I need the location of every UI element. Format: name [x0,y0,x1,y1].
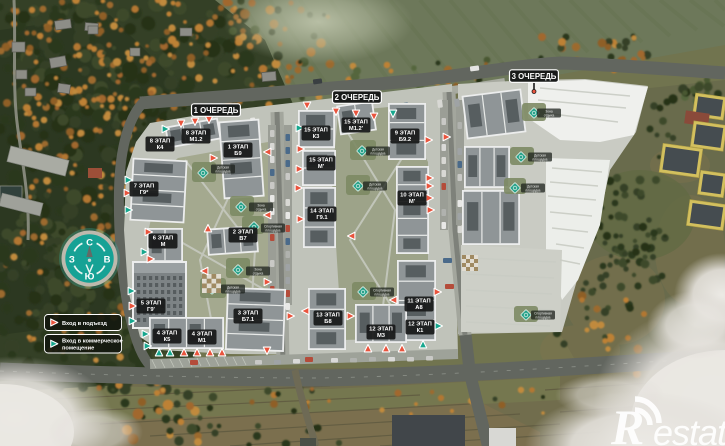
svg-text:К3: К3 [313,134,321,140]
svg-text:М: М [161,242,166,248]
svg-text:площадка: площадка [375,293,390,297]
svg-text:8 ЭТАП: 8 ЭТАП [150,139,170,145]
svg-text:М': М' [409,199,416,205]
svg-text:площадка: площадка [266,229,281,233]
svg-text:Вход в коммерческое: Вход в коммерческое [62,338,123,344]
svg-text:4 ЭТАП: 4 ЭТАП [157,331,177,337]
svg-text:М': М' [318,164,325,170]
svg-text:К4: К4 [157,145,165,151]
svg-text:площадка: площадка [371,152,386,156]
svg-text:площадка: площадка [533,158,548,162]
svg-text:площадка: площадка [216,170,231,174]
svg-text:5 ЭТАП: 5 ЭТАП [141,301,161,307]
svg-text:estate: estate [653,412,725,446]
svg-text:15 ЭТАП: 15 ЭТАП [304,128,328,134]
svg-text:площадка: площадка [368,187,383,191]
svg-text:М1.2': М1.2' [349,126,364,132]
svg-text:15 ЭТАП: 15 ЭТАП [344,120,368,126]
svg-text:отдыха: отдыха [256,208,267,212]
svg-text:Б9.2: Б9.2 [399,137,411,143]
svg-text:Б9: Б9 [234,151,242,157]
svg-text:4 ЭТАП: 4 ЭТАП [192,332,212,338]
svg-text:7 ЭТАП: 7 ЭТАП [134,184,154,190]
svg-text:14 ЭТАП: 14 ЭТАП [310,209,334,215]
svg-text:К5: К5 [164,337,172,343]
svg-text:13 ЭТАП: 13 ЭТАП [316,313,340,319]
svg-text:М3: М3 [377,333,386,339]
svg-text:3 ЭТАП: 3 ЭТАП [238,311,258,317]
svg-text:Б8: Б8 [324,319,332,325]
svg-text:2 ЭТАП: 2 ЭТАП [233,230,253,236]
svg-text:отдыха: отдыха [253,272,264,276]
svg-text:Г9*: Г9* [140,190,150,196]
svg-text:12 ЭТАП: 12 ЭТАП [369,327,393,333]
svg-text:площадка: площадка [226,290,241,294]
svg-text:2 ОЧЕРЕДЬ: 2 ОЧЕРЕДЬ [335,93,380,102]
svg-text:площадка: площадка [536,316,551,320]
svg-text:площадка: площадка [526,189,541,193]
svg-text:Вход в подъезд: Вход в подъезд [62,321,107,327]
svg-text:К1: К1 [417,328,425,334]
svg-text:1 ОЧЕРЕДЬ: 1 ОЧЕРЕДЬ [194,106,239,115]
svg-text:Б7.1: Б7.1 [242,317,255,323]
svg-text:В7: В7 [239,236,246,242]
svg-text:12 ЭТАП: 12 ЭТАП [408,322,432,328]
svg-text:М1.2: М1.2 [190,137,203,143]
svg-text:9 ЭТАП: 9 ЭТАП [395,131,415,137]
svg-text:1 ЭТАП: 1 ЭТАП [228,145,248,151]
svg-text:15 ЭТАП: 15 ЭТАП [309,158,333,164]
svg-text:11 ЭТАП: 11 ЭТАП [407,299,430,305]
svg-text:6 ЭТАП: 6 ЭТАП [153,236,173,242]
svg-text:помещение: помещение [62,345,94,351]
svg-text:А8: А8 [415,305,423,311]
svg-text:10 ЭТАП: 10 ЭТАП [400,193,424,199]
svg-text:Г9': Г9' [147,307,156,313]
svg-text:8 ЭТАП: 8 ЭТАП [186,131,206,137]
svg-text:З: З [69,255,75,266]
svg-text:3 ОЧЕРЕДЬ: 3 ОЧЕРЕДЬ [512,72,557,81]
svg-text:R: R [610,399,644,446]
svg-text:Г9.1: Г9.1 [316,215,328,221]
svg-text:М1: М1 [198,338,207,344]
svg-text:В: В [104,255,111,266]
svg-text:отдыха: отдыха [544,114,555,118]
